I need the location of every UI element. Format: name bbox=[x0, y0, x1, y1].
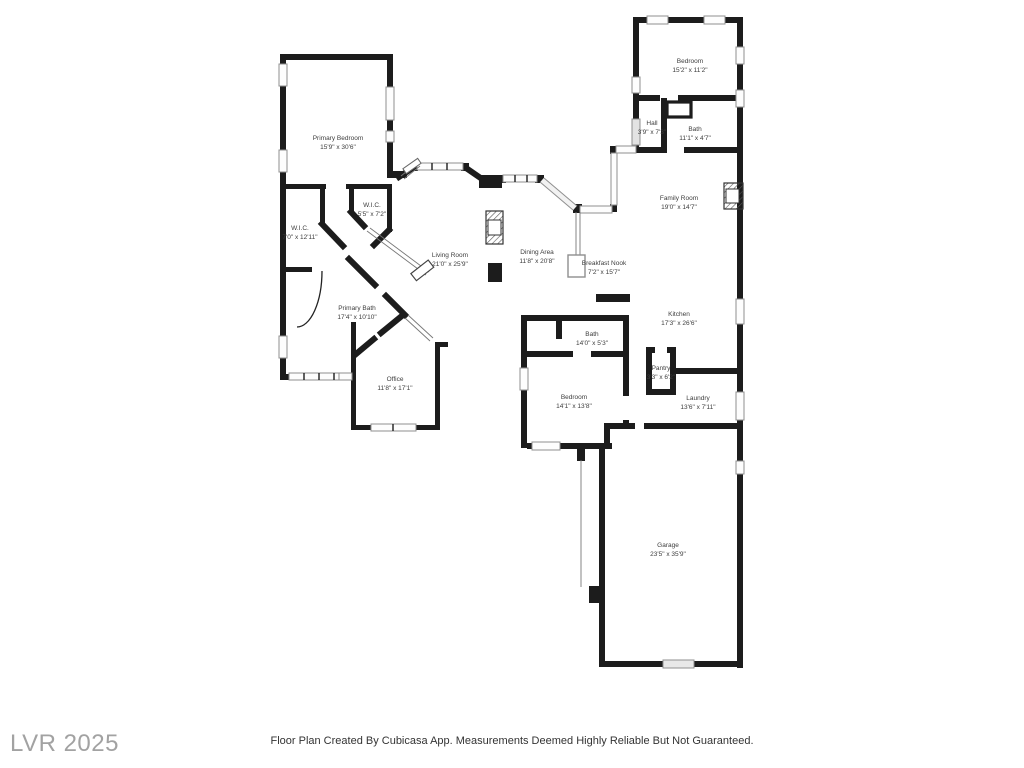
room-name: Pantry bbox=[647, 364, 675, 373]
room-label-bedroom-upper: Bedroom 15'2" x 11'2" bbox=[672, 57, 707, 75]
shower-outline bbox=[667, 102, 691, 117]
room-name: Garage bbox=[650, 541, 686, 550]
window-mullions bbox=[304, 163, 527, 431]
room-dims: 11'8" x 17'1" bbox=[377, 384, 412, 393]
room-name: Bath bbox=[576, 330, 608, 339]
room-name: W.I.C. bbox=[358, 201, 386, 210]
room-label-hall: Hall 3'9" x 7'3" bbox=[638, 119, 666, 137]
room-name: Living Room bbox=[432, 251, 468, 260]
room-label-kitchen: Kitchen 17'3" x 26'6" bbox=[661, 310, 697, 328]
room-name: Office bbox=[377, 375, 412, 384]
room-dims: 7'0" x 12'11" bbox=[282, 233, 317, 242]
room-dims: 13'6" x 7'11" bbox=[680, 403, 715, 412]
room-name: Hall bbox=[638, 119, 666, 128]
room-dims: 14'0" x 5'3" bbox=[576, 339, 608, 348]
doors bbox=[297, 158, 434, 327]
room-dims: 5'5" x 7'2" bbox=[358, 210, 386, 219]
room-label-bedroom-center: Bedroom 14'1" x 13'8" bbox=[556, 393, 592, 411]
floor-plan-canvas bbox=[0, 0, 1024, 768]
room-name: Laundry bbox=[680, 394, 715, 403]
room-name: Breakfast Nook bbox=[582, 259, 626, 268]
room-label-breakfast-nook: Breakfast Nook 7'2" x 15'7" bbox=[582, 259, 626, 277]
floor-plan-page: Primary Bedroom 15'9" x 30'6" W.I.C. 5'5… bbox=[0, 0, 1024, 768]
room-name: Family Room bbox=[660, 194, 698, 203]
room-label-pantry: Pantry 3'3" x 6'2" bbox=[647, 364, 675, 382]
room-label-bath-upper: Bath 11'1" x 4'7" bbox=[679, 125, 711, 143]
room-label-wic-left: W.I.C. 7'0" x 12'11" bbox=[282, 224, 317, 242]
room-dims: 21'0" x 25'9" bbox=[432, 260, 468, 269]
room-name: Bath bbox=[679, 125, 711, 134]
room-dims: 11'8" x 20'8" bbox=[519, 257, 554, 266]
room-name: Primary Bedroom bbox=[313, 134, 364, 143]
room-dims: 19'0" x 14'7" bbox=[660, 203, 698, 212]
room-dims: 15'2" x 11'2" bbox=[672, 66, 707, 75]
room-dims: 3'3" x 6'2" bbox=[647, 373, 675, 382]
diagonal-window bbox=[540, 178, 577, 210]
room-dims: 14'1" x 13'8" bbox=[556, 402, 592, 411]
footer-disclaimer: Floor Plan Created By Cubicasa App. Meas… bbox=[0, 735, 1024, 747]
room-name: Bedroom bbox=[672, 57, 707, 66]
room-label-wic-small: W.I.C. 5'5" x 7'2" bbox=[358, 201, 386, 219]
room-dims: 11'1" x 4'7" bbox=[679, 134, 711, 143]
room-label-dining-area: Dining Area 11'8" x 20'8" bbox=[519, 248, 554, 266]
windows bbox=[279, 16, 744, 668]
room-name: Bedroom bbox=[556, 393, 592, 402]
room-name: Primary Bath bbox=[337, 304, 376, 313]
room-dims: 17'3" x 26'6" bbox=[661, 319, 697, 328]
room-name: Dining Area bbox=[519, 248, 554, 257]
room-label-family-room: Family Room 19'0" x 14'7" bbox=[660, 194, 698, 212]
room-dims: 23'5" x 35'9" bbox=[650, 550, 686, 559]
room-label-garage: Garage 23'5" x 35'9" bbox=[650, 541, 686, 559]
room-dims: 17'4" x 10'10" bbox=[337, 313, 376, 322]
room-dims: 15'9" x 30'6" bbox=[313, 143, 364, 152]
walls bbox=[280, 17, 743, 668]
room-name: Kitchen bbox=[661, 310, 697, 319]
room-label-laundry: Laundry 13'6" x 7'11" bbox=[680, 394, 715, 412]
room-label-living-room: Living Room 21'0" x 25'9" bbox=[432, 251, 468, 269]
room-dims: 7'2" x 15'7" bbox=[582, 268, 626, 277]
room-label-bath-center: Bath 14'0" x 5'3" bbox=[576, 330, 608, 348]
room-name: W.I.C. bbox=[282, 224, 317, 233]
room-label-office: Office 11'8" x 17'1" bbox=[377, 375, 412, 393]
room-label-primary-bedroom: Primary Bedroom 15'9" x 30'6" bbox=[313, 134, 364, 152]
room-label-primary-bath: Primary Bath 17'4" x 10'10" bbox=[337, 304, 376, 322]
room-dims: 3'9" x 7'3" bbox=[638, 128, 666, 137]
